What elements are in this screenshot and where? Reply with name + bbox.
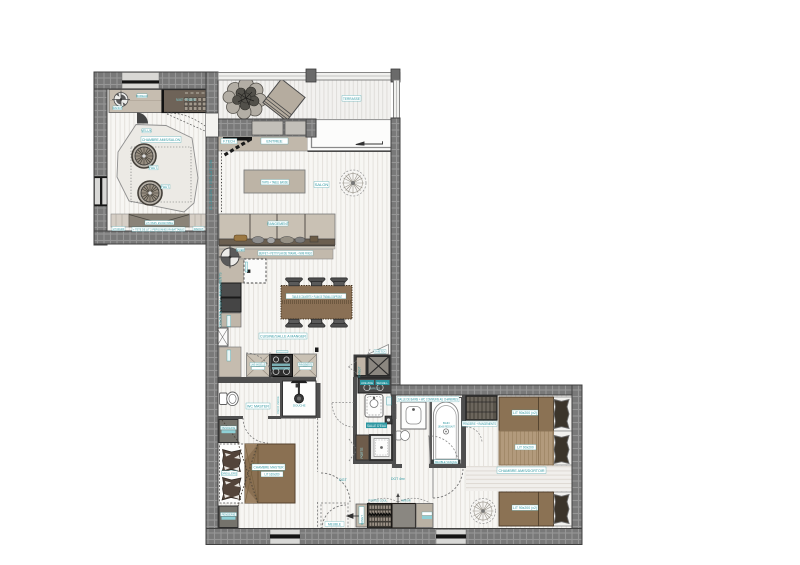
svg-text:FAUT.: FAUT. — [149, 166, 158, 170]
svg-text:LIT 160x200: LIT 160x200 — [265, 473, 280, 477]
svg-text:PORTE: PORTE — [360, 448, 364, 459]
svg-text:VELUX: VELUX — [141, 129, 152, 133]
svg-text:OREILLERS: OREILLERS — [221, 472, 237, 476]
svg-text:CUISINE/SALLE A MANGER: CUISINE/SALLE A MANGER — [260, 334, 306, 339]
svg-text:MIROIR: MIROIR — [401, 499, 410, 503]
svg-text:LIT 2 PERS. ESCAMOTABLE: LIT 2 PERS. ESCAMOTABLE — [146, 221, 173, 225]
svg-text:PENDERIE: PENDERIE — [222, 512, 236, 516]
svg-text:CHAMBRE AMIS/DORTOIR: CHAMBRE AMIS/DORTOIR — [499, 468, 545, 473]
svg-text:SALON: SALON — [315, 182, 329, 187]
svg-text:LAVE-VAISSELLE: LAVE-VAISSELLE — [251, 362, 265, 366]
svg-text:FAUT.: FAUT. — [161, 185, 170, 189]
svg-text:TAPIS + TABLE BASSE: TAPIS + TABLE BASSE — [262, 181, 289, 185]
svg-text:DGT: DGT — [339, 478, 347, 482]
svg-text:F.TECH: F.TECH — [223, 140, 235, 144]
svg-text:RANGEMENTS: RANGEMENTS — [299, 362, 312, 366]
svg-text:PORTES COUL.: PORTES COUL. — [368, 499, 388, 503]
svg-text:CLOISON + ISOLATION: CLOISON + ISOLATION — [209, 159, 213, 210]
svg-text:PENDERIE: PENDERIE — [222, 426, 236, 430]
svg-text:LIT 90x200 (x2): LIT 90x200 (x2) — [513, 506, 537, 510]
svg-text:WC MASTER: WC MASTER — [247, 405, 269, 409]
svg-text:BUREAU: BUREAU — [136, 94, 148, 98]
svg-text:RADIAT: RADIAT — [194, 227, 203, 231]
svg-text:PENDERIE + RANGEMENTS: PENDERIE + RANGEMENTS — [463, 422, 497, 426]
svg-text:RANGT: RANGT — [360, 515, 364, 525]
svg-text:DGT 4m²: DGT 4m² — [391, 477, 406, 481]
svg-text:SECHE-L.: SECHE-L. — [377, 381, 389, 385]
svg-text:LIT 90x200: LIT 90x200 — [517, 446, 534, 450]
svg-text:DOUCHE: DOUCHE — [293, 403, 306, 407]
svg-text:RANGT: RANGT — [358, 366, 362, 377]
svg-text:COLONNE FOUR + RANGEMENTS: COLONNE FOUR + RANGEMENTS — [219, 272, 223, 328]
svg-text:RANGT + PENDERIE: RANGT + PENDERIE — [176, 98, 196, 102]
svg-text:PAROI VERRE: PAROI VERRE — [276, 396, 280, 414]
svg-text:GAINE TECH: GAINE TECH — [375, 350, 385, 354]
svg-text:EVIER: EVIER — [237, 248, 245, 252]
svg-text:SALLE D'EAU: SALLE D'EAU — [367, 424, 387, 428]
svg-text:LIT 160x200: LIT 160x200 — [113, 227, 124, 231]
svg-text:MEUBLE VASQUE: MEUBLE VASQUE — [435, 460, 457, 464]
svg-text:+ TETE DE LIT 2 PERSONNES RABA: + TETE DE LIT 2 PERSONNES RABATTABLE — [133, 227, 184, 231]
svg-text:BUFFET + PETIT PLAN DE TRAVAIL: BUFFET + PETIT PLAN DE TRAVAIL + MINI FR… — [259, 251, 312, 255]
svg-text:MEUBLE: MEUBLE — [328, 523, 341, 527]
svg-text:ENTREE: ENTREE — [266, 139, 283, 144]
svg-text:LIT 90x200 (x2): LIT 90x200 (x2) — [513, 411, 537, 415]
svg-text:CHAMBRE AMIS/SALON: CHAMBRE AMIS/SALON — [142, 137, 180, 142]
svg-text:LAVE-LINGE: LAVE-LINGE — [361, 381, 373, 385]
svg-text:180x80 RESSAUT: 180x80 RESSAUT — [438, 424, 455, 428]
svg-text:CHAMBRE MASTER: CHAMBRE MASTER — [254, 465, 284, 470]
svg-text:SALLE DE BAINS + WC COMMUNS AU: SALLE DE BAINS + WC COMMUNS AU CHAMBRES — [398, 398, 459, 402]
svg-text:TABLE 8 COUVERTS + PLAN DE TRA: TABLE 8 COUVERTS + PLAN DE TRAVAIL D'APP… — [292, 295, 342, 299]
svg-text:TERRASSE: TERRASSE — [343, 97, 361, 101]
svg-text:EMPILES: EMPILES — [369, 387, 381, 391]
svg-text:RANGT: RANGT — [113, 106, 123, 110]
svg-text:BAIN: BAIN — [443, 421, 450, 425]
svg-text:RANGEMENT: RANGEMENT — [267, 222, 289, 226]
